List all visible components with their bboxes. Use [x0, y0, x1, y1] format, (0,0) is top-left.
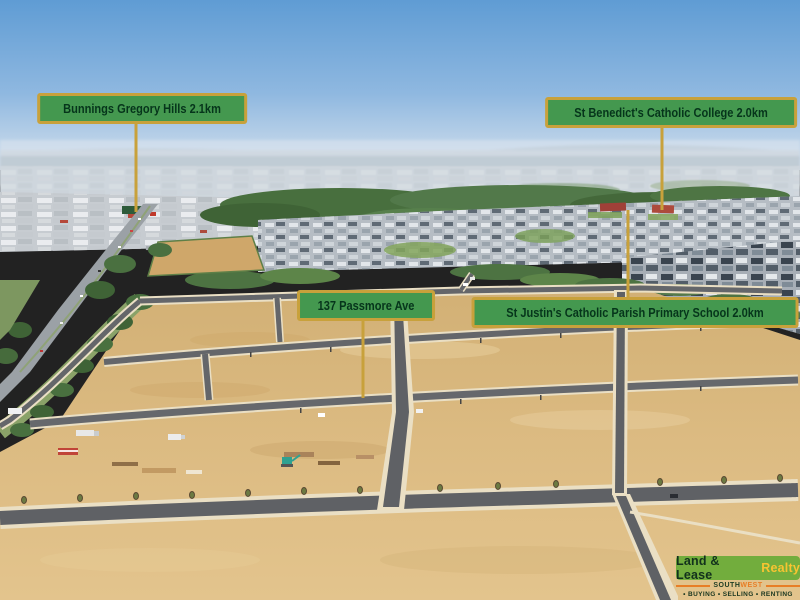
agency-region-row: SOUTHWEST: [676, 582, 800, 589]
callout-college: St Benedict's Catholic College 2.0km: [545, 97, 797, 128]
agency-tagline: • BUYING • SELLING • RENTING: [676, 591, 800, 598]
callout-school-text: St Justin's Catholic Parish Primary Scho…: [506, 306, 763, 319]
real-estate-aerial-photo: Bunnings Gregory Hills 2.1km St Benedict…: [0, 0, 800, 600]
excavator: [282, 457, 292, 464]
region-rule-right: [766, 585, 800, 587]
region-rule-left: [676, 585, 710, 587]
st-justins-school-building: [600, 203, 626, 212]
callout-address: 137 Passmore Ave: [297, 290, 435, 321]
agency-logo: Land & Lease Realty SOUTHWEST • BUYING •…: [676, 556, 800, 598]
callout-school: St Justin's Catholic Parish Primary Scho…: [472, 297, 799, 328]
callout-bunnings: Bunnings Gregory Hills 2.1km: [37, 93, 247, 124]
agency-logo-brandbox: Land & Lease Realty: [676, 556, 800, 580]
brand-name-primary: Land & Lease: [676, 554, 758, 582]
callout-bunnings-text: Bunnings Gregory Hills 2.1km: [63, 102, 221, 115]
brand-name-accent: Realty: [761, 561, 800, 575]
region-primary: SOUTH: [713, 582, 740, 589]
callout-college-text: St Benedict's Catholic College 2.0km: [574, 106, 768, 119]
region-accent: WEST: [740, 582, 762, 589]
callout-address-text: 137 Passmore Ave: [318, 299, 415, 312]
